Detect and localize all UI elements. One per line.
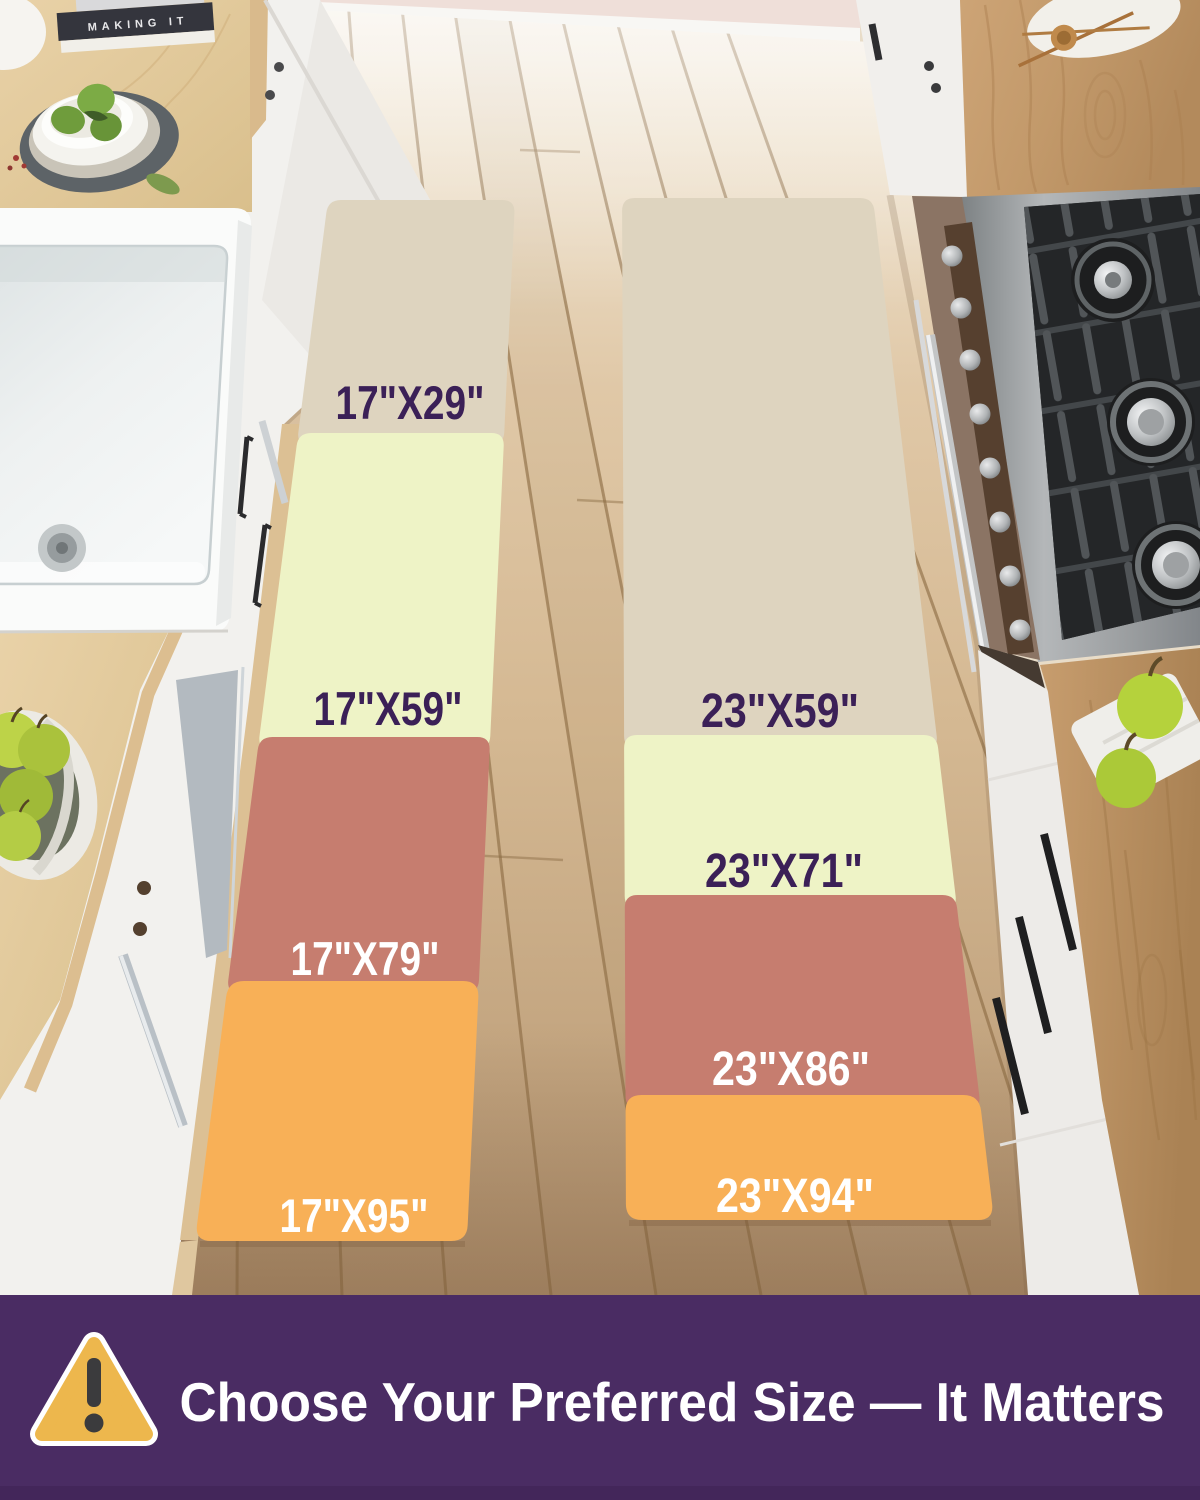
svg-text:17"X29": 17"X29" (336, 376, 485, 429)
svg-text:17"X95": 17"X95" (280, 1189, 429, 1242)
svg-text:23"X71": 23"X71" (705, 845, 863, 898)
svg-text:Choose Your Preferred Size — I: Choose Your Preferred Size — It Matters (180, 1371, 1165, 1433)
svg-text:23"X59": 23"X59" (701, 685, 859, 738)
svg-text:17"X59": 17"X59" (314, 682, 463, 735)
svg-text:23"X86": 23"X86" (712, 1043, 870, 1096)
svg-text:17"X79": 17"X79" (291, 932, 440, 985)
svg-text:23"X94": 23"X94" (716, 1170, 874, 1223)
